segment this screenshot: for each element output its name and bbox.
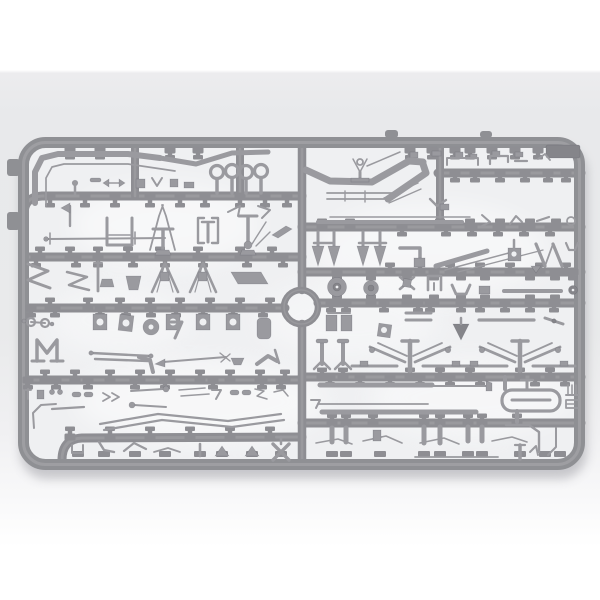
sprue-photo <box>0 0 600 600</box>
product-photo <box>0 0 600 600</box>
